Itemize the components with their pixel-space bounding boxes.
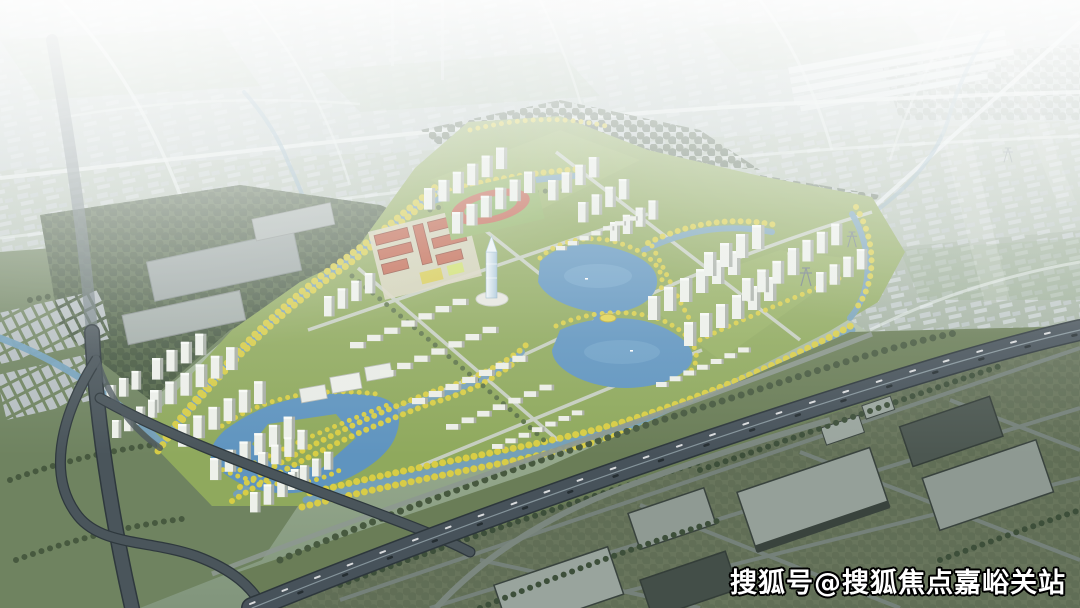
haze-corner-right — [0, 0, 1080, 608]
watermark-text: 搜狐号@搜狐焦点嘉峪关站 — [730, 561, 1066, 600]
aerial-render: 搜狐号@搜狐焦点嘉峪关站 — [0, 0, 1080, 608]
